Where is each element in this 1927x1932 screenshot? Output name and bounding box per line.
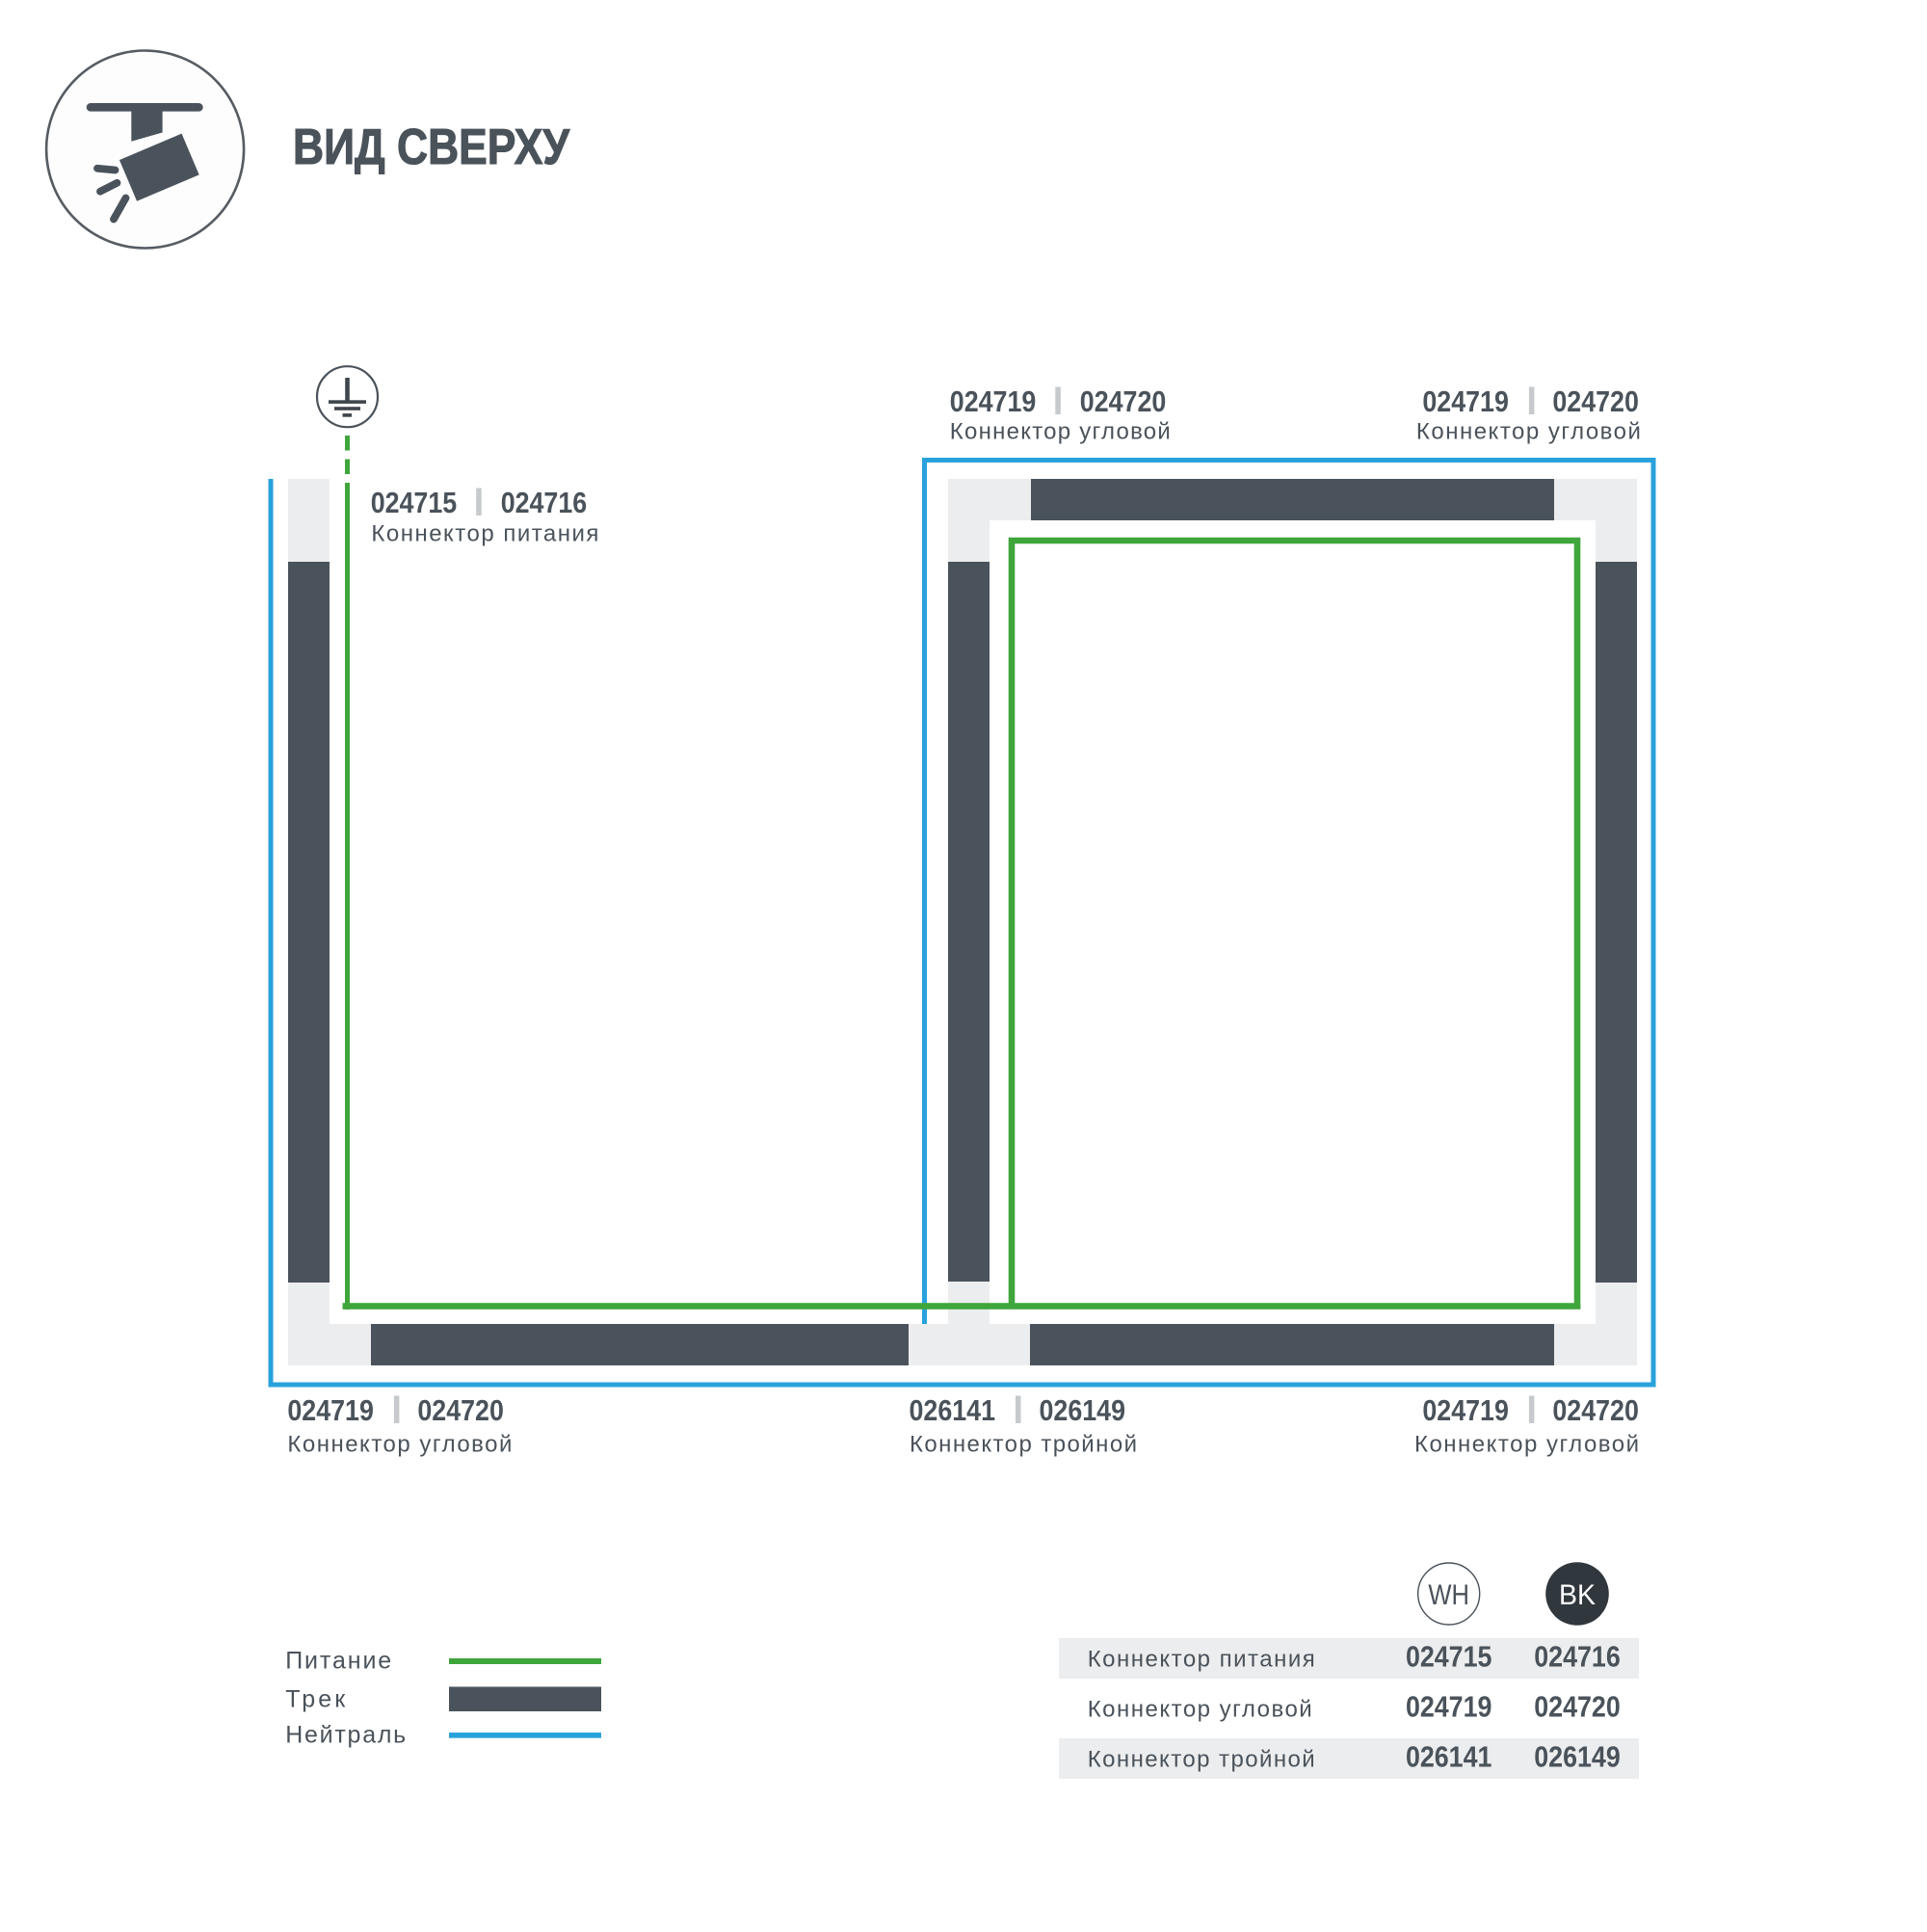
- svg-text:Коннектор угловой: Коннектор угловой: [1414, 1432, 1639, 1458]
- svg-text:024719: 024719: [950, 384, 1037, 418]
- svg-text:024720: 024720: [1552, 384, 1639, 418]
- svg-text:024715: 024715: [1406, 1640, 1492, 1674]
- svg-text:Коннектор угловой: Коннектор угловой: [1416, 418, 1641, 444]
- svg-text:024719: 024719: [287, 1393, 374, 1427]
- svg-text:024720: 024720: [1534, 1690, 1621, 1724]
- svg-text:Коннектор тройной: Коннектор тройной: [1088, 1747, 1315, 1773]
- svg-text:024719: 024719: [1422, 1393, 1509, 1427]
- svg-text:Коннектор угловой: Коннектор угловой: [1088, 1697, 1312, 1723]
- svg-text:BK: BK: [1559, 1579, 1596, 1611]
- svg-text:Коннектор питания: Коннектор питания: [371, 520, 598, 546]
- svg-text:024719: 024719: [1422, 384, 1509, 418]
- svg-text:Коннектор тройной: Коннектор тройной: [910, 1432, 1137, 1458]
- svg-text:ВИД СВЕРХУ: ВИД СВЕРХУ: [293, 119, 570, 175]
- svg-text:WH: WH: [1428, 1579, 1469, 1611]
- svg-text:024720: 024720: [1080, 384, 1167, 418]
- svg-text:024720: 024720: [417, 1393, 504, 1427]
- svg-text:Коннектор угловой: Коннектор угловой: [950, 418, 1171, 444]
- svg-text:024719: 024719: [1406, 1690, 1492, 1724]
- svg-text:026149: 026149: [1534, 1740, 1621, 1774]
- svg-text:024720: 024720: [1552, 1393, 1639, 1427]
- svg-text:026141: 026141: [1406, 1740, 1492, 1774]
- svg-text:Коннектор питания: Коннектор питания: [1088, 1647, 1315, 1673]
- svg-text:Коннектор угловой: Коннектор угловой: [287, 1432, 512, 1458]
- svg-text:024716: 024716: [501, 486, 588, 519]
- svg-text:026141: 026141: [910, 1393, 996, 1427]
- svg-text:024715: 024715: [371, 486, 458, 519]
- svg-text:026149: 026149: [1040, 1393, 1126, 1427]
- svg-text:024716: 024716: [1534, 1640, 1621, 1674]
- svg-text:Питание: Питание: [285, 1648, 391, 1675]
